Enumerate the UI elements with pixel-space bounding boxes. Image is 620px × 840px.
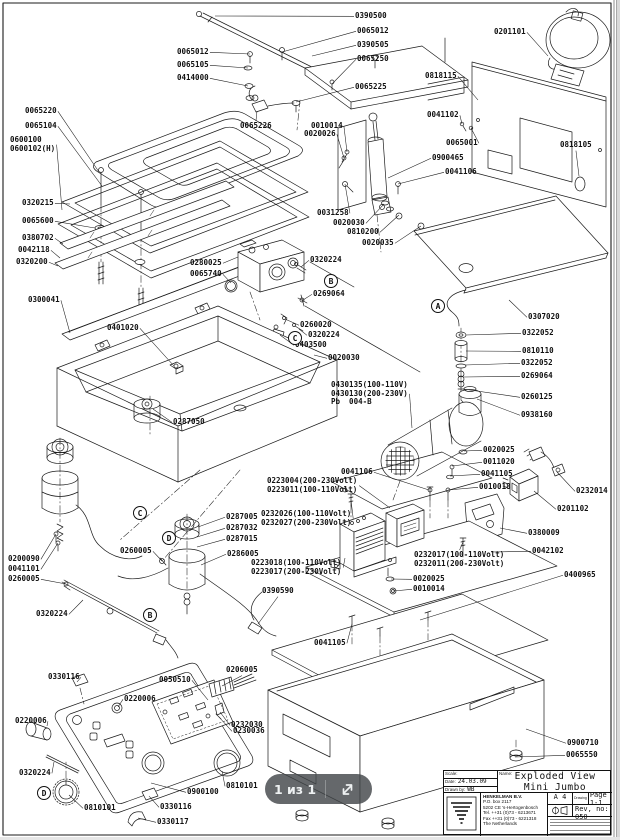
reference-balloon-C: C [288,331,302,345]
reference-balloon-B: B [143,608,157,622]
document-viewer: 0390500006501203905050065250006522500650… [0,0,620,840]
viewer-overlay[interactable]: 1 из 1 [265,774,372,804]
reference-balloon-C: C [133,506,147,520]
paper-size: A 4 [548,793,573,804]
expand-icon[interactable] [339,781,356,798]
revision-number: Rev, no: 050 [573,805,612,816]
reference-balloon-B: B [324,274,338,288]
page-edge [616,0,620,840]
reference-balloon-D: D [162,531,176,545]
henkelman-logo [444,793,479,834]
reference-balloon-D: D [37,786,51,800]
leader-lines [0,0,620,840]
name-field-label: Name: [499,771,512,776]
pill-divider [325,780,326,798]
projection-symbol-icon [551,806,569,815]
company-info: HENKELMAN B.V. P.O. box 2117 5202 CE 's-… [481,793,548,836]
page-indicator: 1 из 1 [265,782,325,797]
title-block: Scale: Date: 24.03.09 Drawn by: WB Name:… [443,770,611,835]
reference-balloon-A: A [431,299,445,313]
drawing-field-label: Drawing [573,793,589,804]
